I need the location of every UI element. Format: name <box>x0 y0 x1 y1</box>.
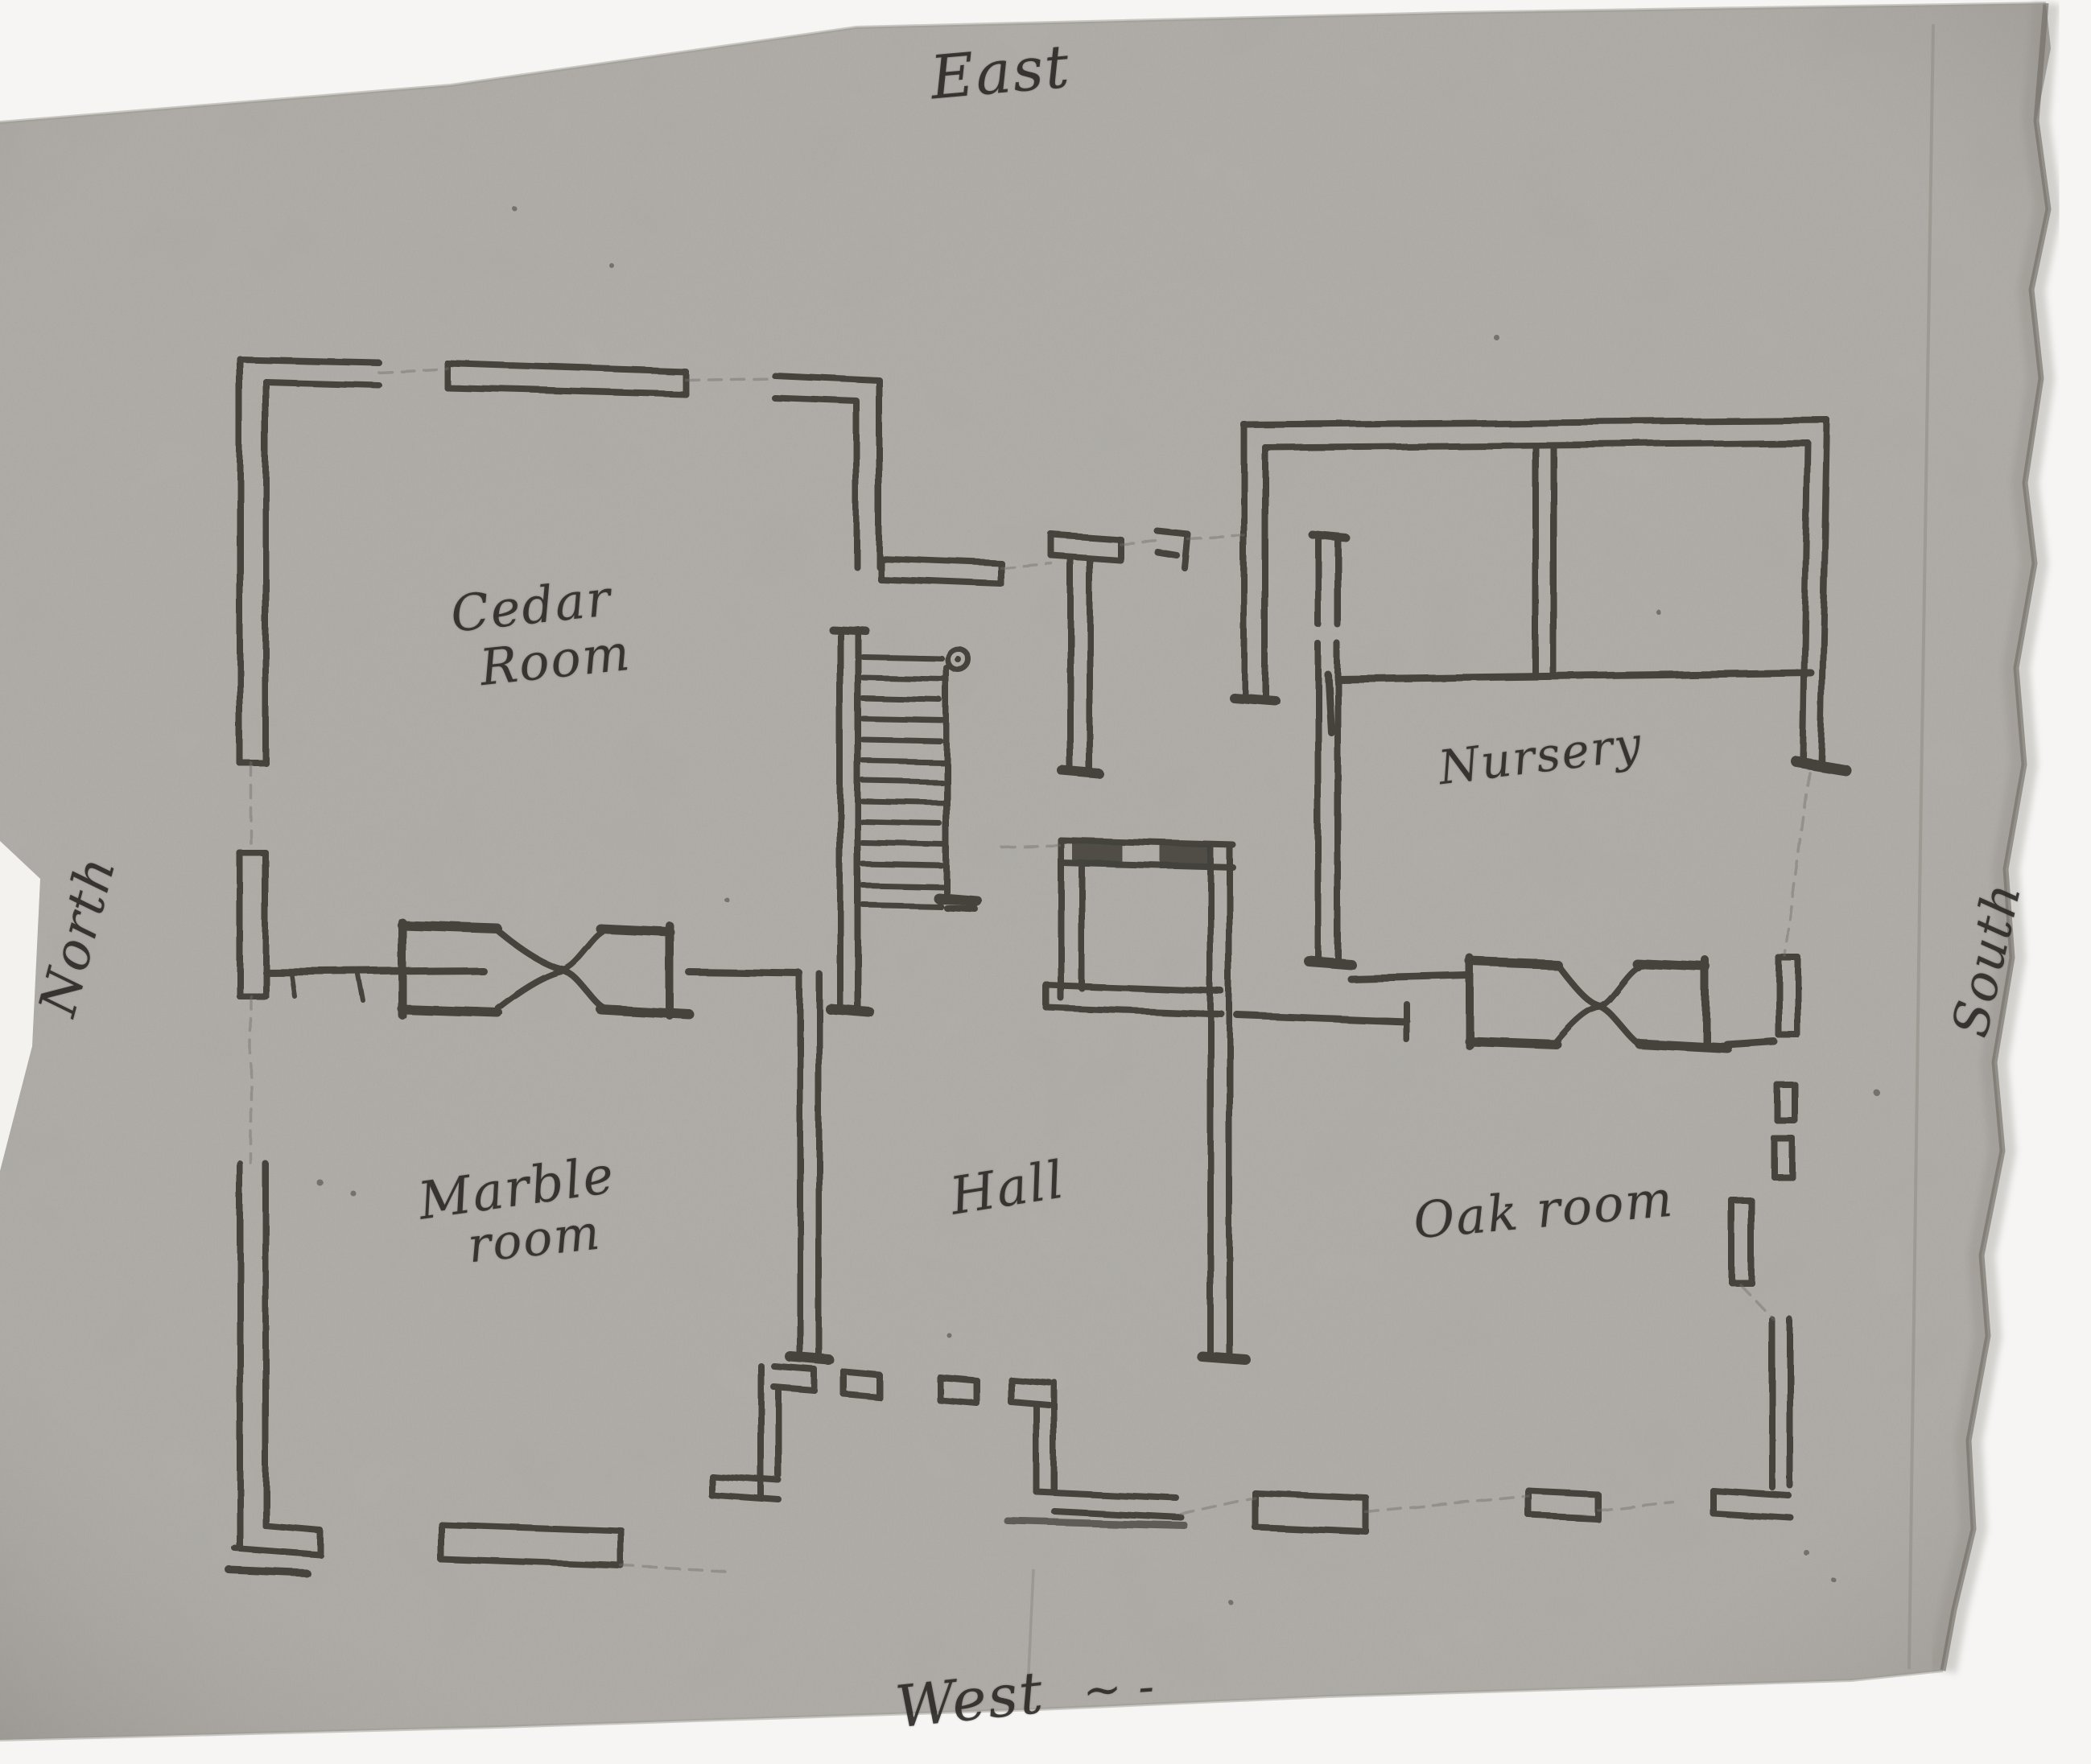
paper-sheet <box>0 0 2091 1764</box>
scanned-floorplan-document: East North South West ~ - Cedar Room Mar… <box>0 0 2091 1764</box>
compass-west-flourish: ~ - <box>1081 1659 1157 1718</box>
compass-east-label: East <box>928 32 1074 113</box>
floorplan-drawing <box>0 0 2091 1764</box>
